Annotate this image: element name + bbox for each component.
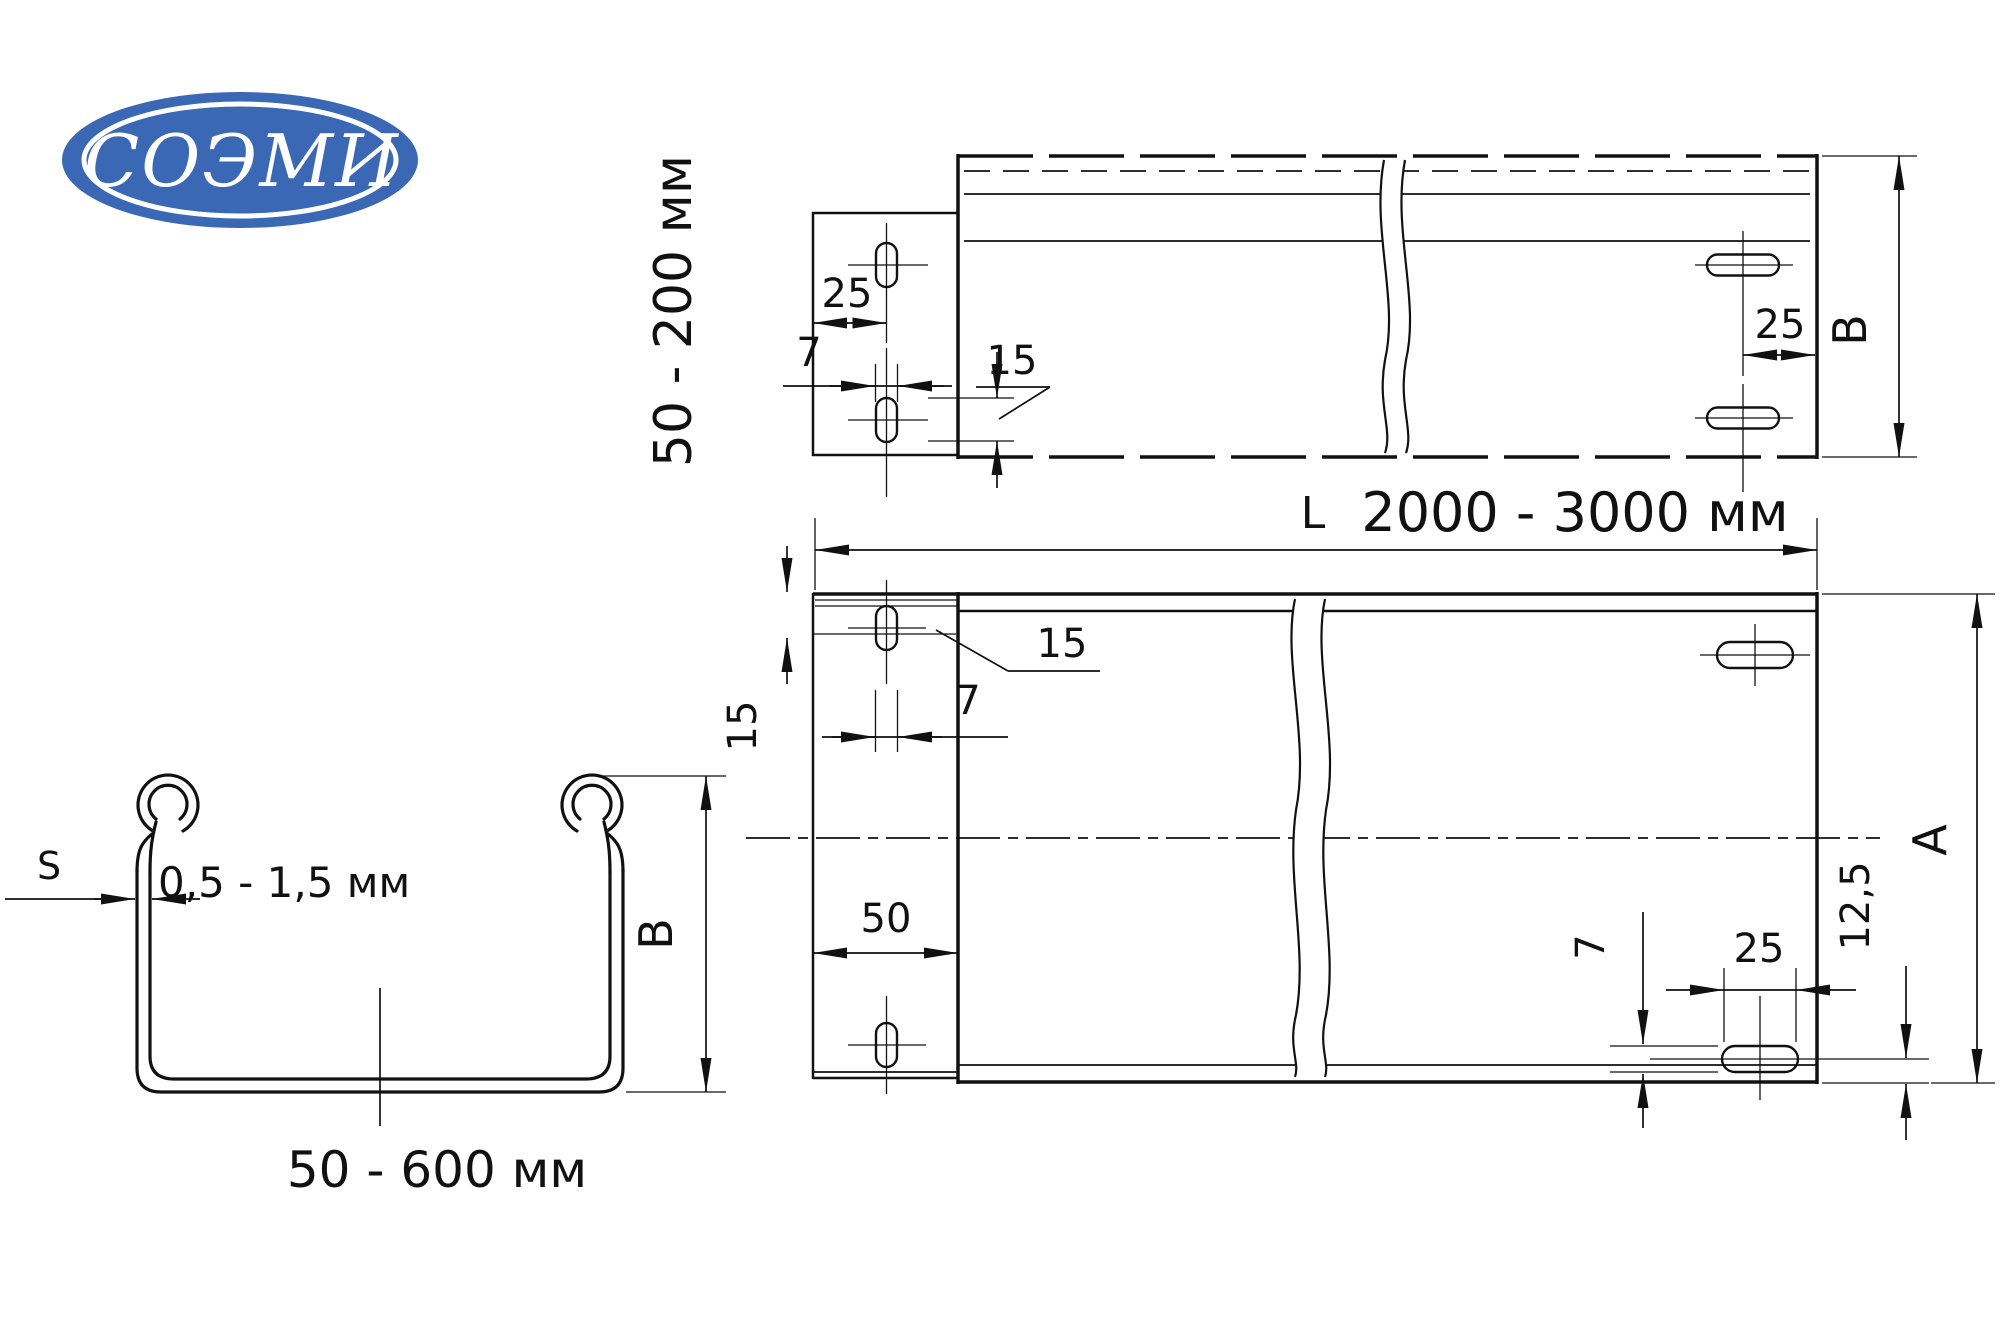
plan-dim-7r-label: 7 bbox=[1568, 934, 1614, 959]
length-range: 2000 - 3000 мм bbox=[1361, 481, 1788, 544]
section-dim-S-label: S bbox=[37, 844, 61, 888]
side-dim-15-label: 15 bbox=[987, 338, 1038, 384]
plan-view-dimensions: 15 15 7 50 7 25 12,5 A bbox=[720, 546, 1995, 1140]
logo: СОЭМИ bbox=[62, 92, 418, 228]
section-thickness-range: 0,5 - 1,5 мм bbox=[158, 858, 410, 907]
side-dim-25-end-label: 25 bbox=[1755, 302, 1806, 348]
plan-dim-50-label: 50 bbox=[861, 896, 912, 942]
section-left-curl-inner bbox=[149, 785, 187, 819]
drawing-canvas: СОЭМИ 25 bbox=[0, 0, 2000, 1333]
side-view bbox=[813, 154, 1817, 497]
side-dim-25-tab-label: 25 bbox=[822, 271, 873, 317]
section-left-curl-outer bbox=[138, 775, 198, 831]
plan-dim-A-label: A bbox=[1903, 824, 1957, 856]
side-connector-tab bbox=[813, 213, 958, 455]
plan-dim-125-label: 12,5 bbox=[1833, 861, 1879, 950]
section-right-curl-outer bbox=[562, 775, 622, 831]
side-view-dimensions: 25 7 15 25 B 50 - 200 мм bbox=[644, 155, 1917, 488]
plan-dim-15-leader bbox=[936, 630, 1008, 671]
section-view bbox=[137, 775, 623, 1126]
side-dim-15-leader bbox=[999, 387, 1050, 419]
section-dimensions: S 0,5 - 1,5 мм B 50 - 600 мм bbox=[5, 776, 726, 1199]
plan-dim-25-label: 25 bbox=[1734, 926, 1785, 972]
side-dim-7-label: 7 bbox=[796, 330, 821, 376]
technical-drawing: СОЭМИ 25 bbox=[0, 0, 2000, 1333]
length-dimension: L 2000 - 3000 мм bbox=[815, 481, 1817, 590]
plan-dim-15-label: 15 bbox=[1037, 621, 1088, 667]
length-letter: L bbox=[1301, 488, 1326, 539]
plan-dim-7-label: 7 bbox=[955, 678, 980, 724]
side-height-range-label: 50 - 200 мм bbox=[644, 155, 704, 467]
section-dim-B-label: B bbox=[629, 918, 683, 950]
plan-view bbox=[746, 580, 1929, 1100]
section-width-range: 50 - 600 мм bbox=[287, 1141, 587, 1199]
section-right-curl-inner bbox=[573, 785, 611, 819]
plan-dim-15v-label: 15 bbox=[720, 701, 766, 752]
side-dim-B-label: B bbox=[1823, 314, 1877, 346]
logo-text: СОЭМИ bbox=[84, 119, 400, 203]
